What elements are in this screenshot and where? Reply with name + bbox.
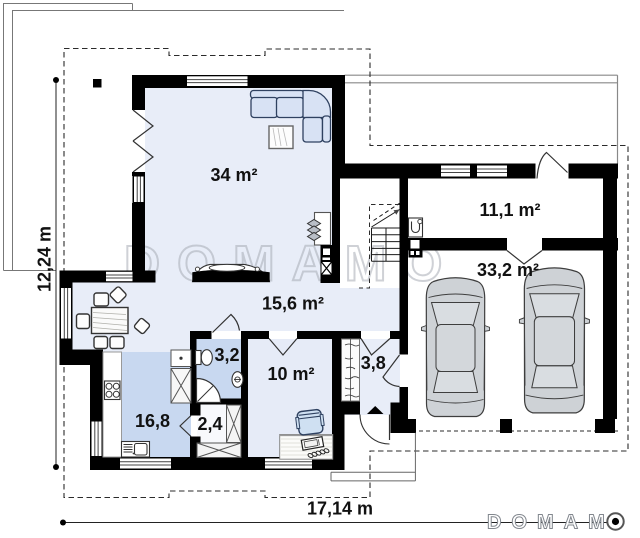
svg-text:15,6 m²: 15,6 m² <box>262 294 324 314</box>
svg-text:33,2 m²: 33,2 m² <box>477 260 539 280</box>
svg-text:16,8: 16,8 <box>135 411 170 431</box>
svg-text:34 m²: 34 m² <box>210 165 257 185</box>
svg-text:3,2: 3,2 <box>214 345 239 365</box>
svg-text:2,4: 2,4 <box>197 414 222 434</box>
svg-text:10 m²: 10 m² <box>267 364 314 384</box>
svg-text:DOMAM: DOMAM <box>487 512 615 534</box>
svg-text:3,8: 3,8 <box>361 353 386 373</box>
svg-text:17,14 m: 17,14 m <box>307 499 373 519</box>
svg-text:12,24 m: 12,24 m <box>35 226 55 292</box>
svg-text:11,1 m²: 11,1 m² <box>479 200 540 220</box>
